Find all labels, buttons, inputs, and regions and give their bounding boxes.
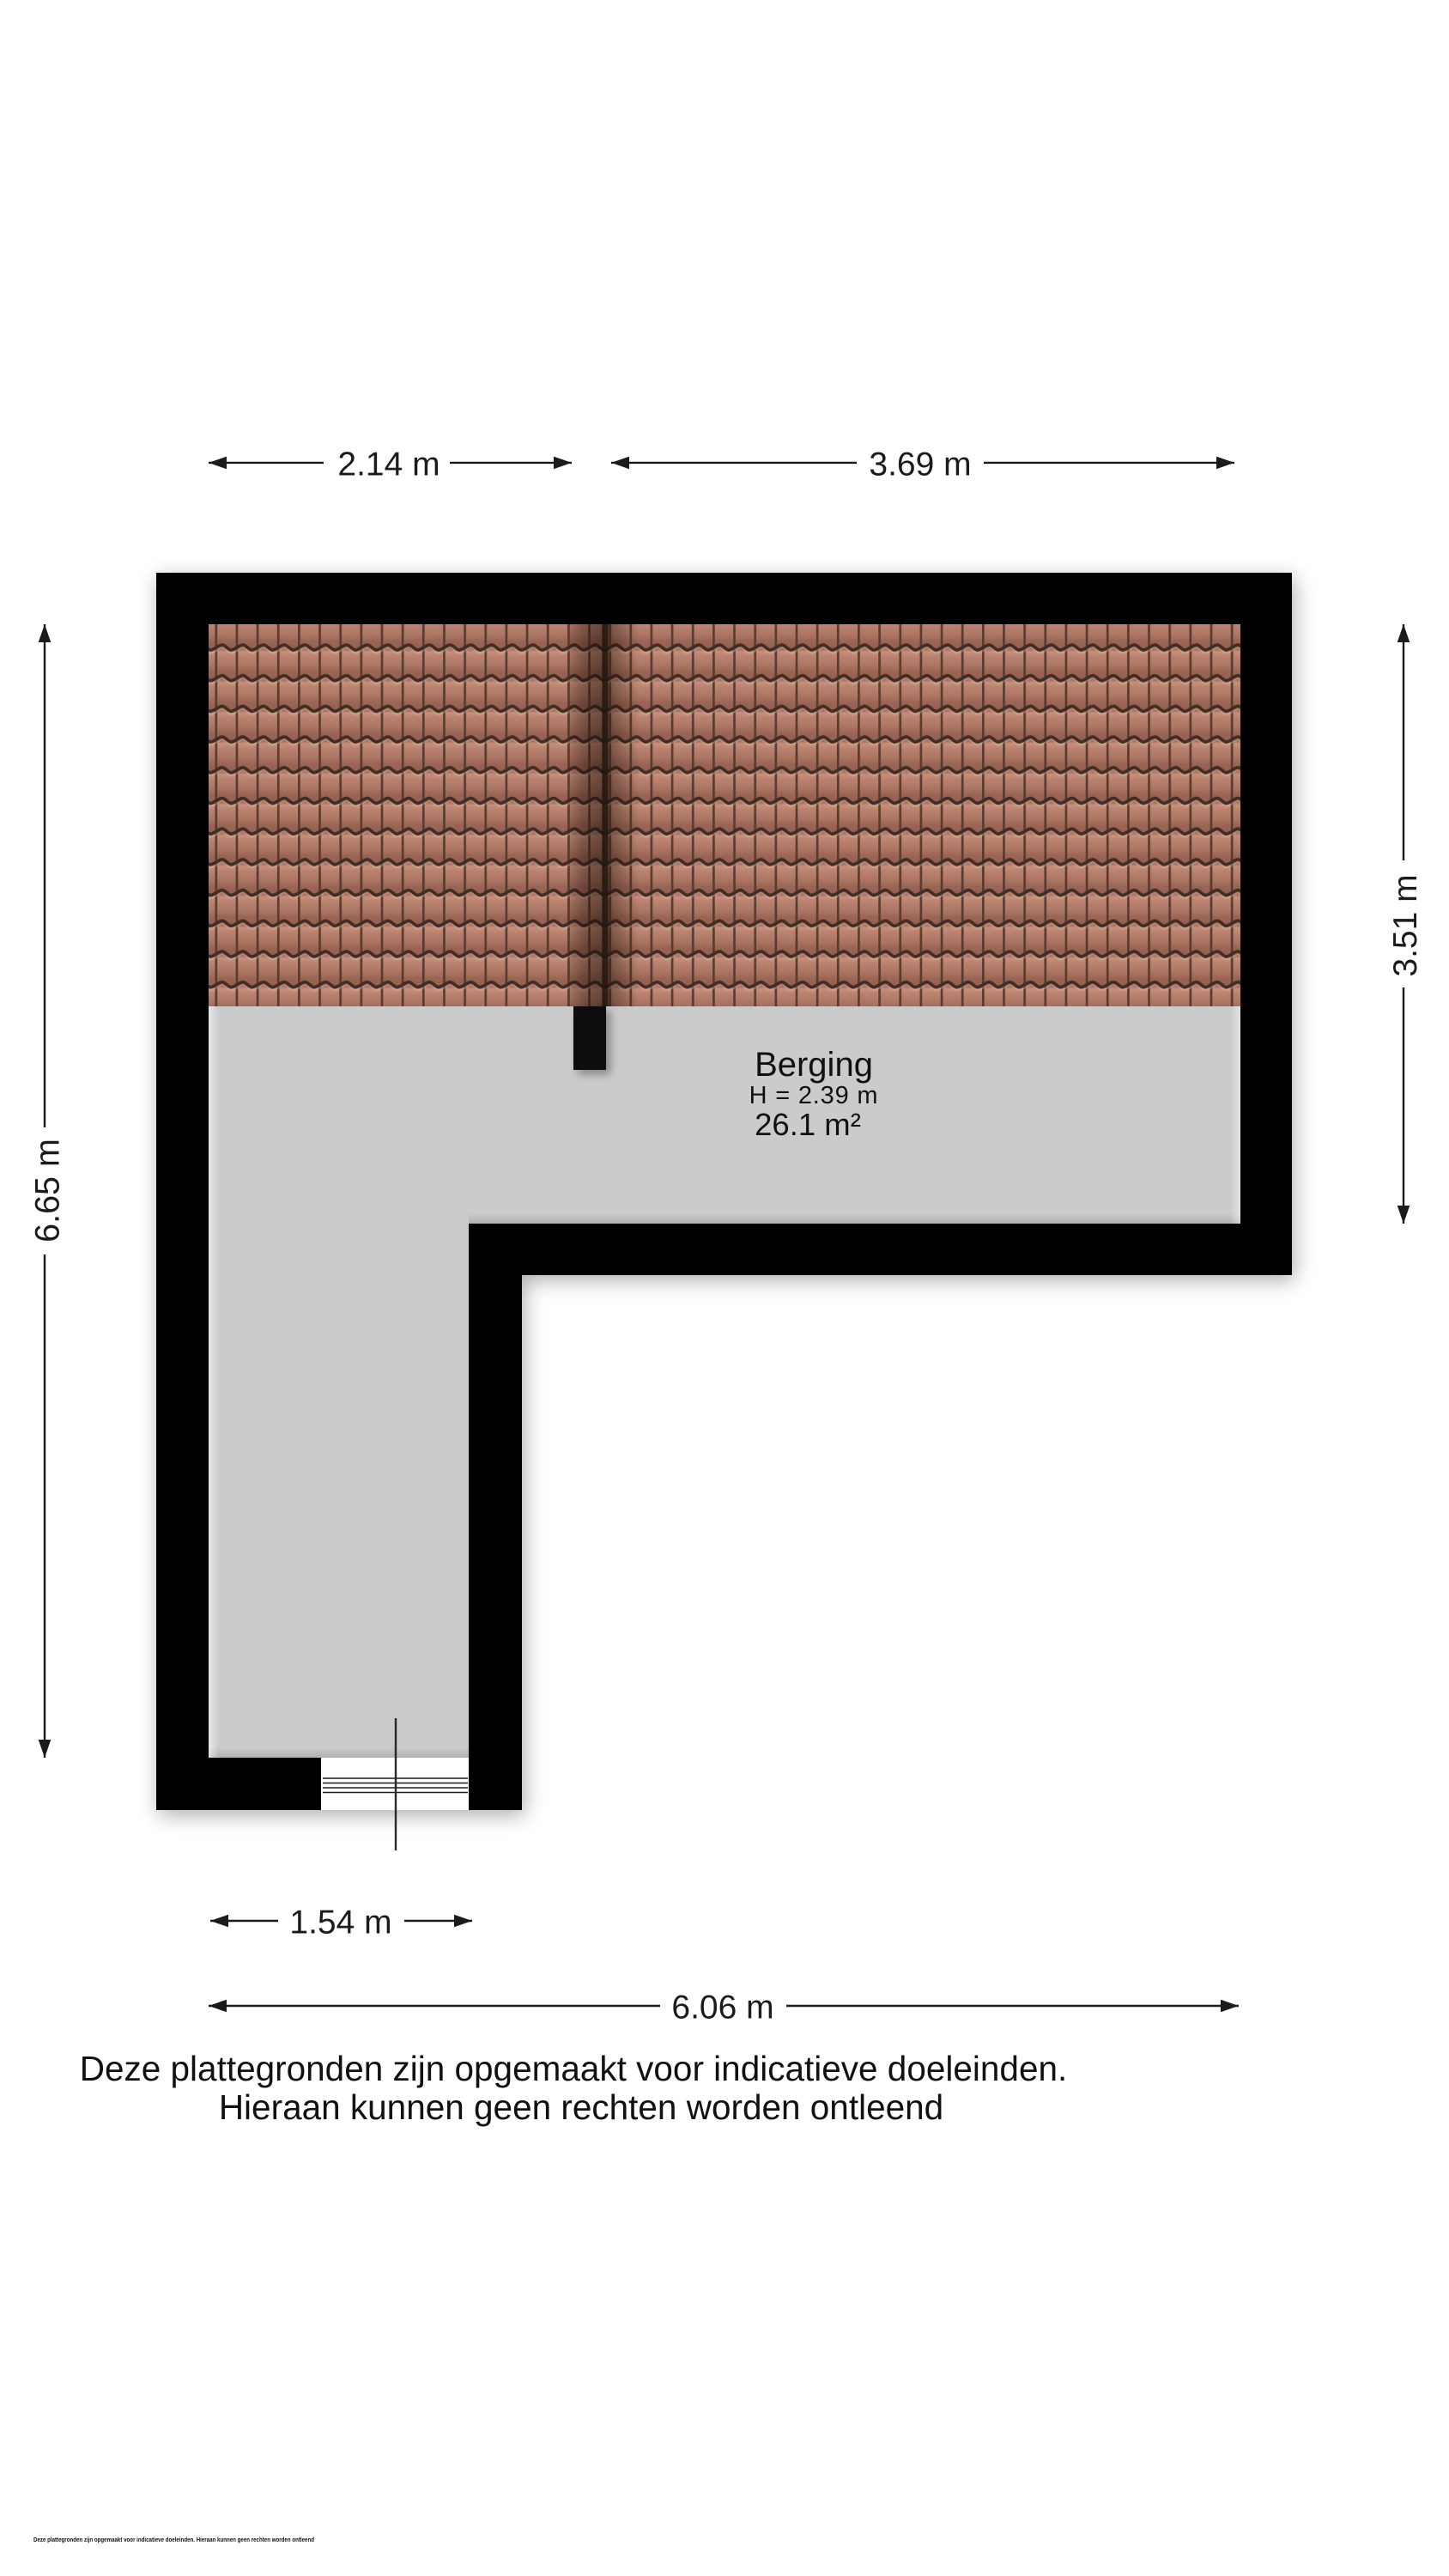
svg-text:Hieraan kunnen geen rechten wo: Hieraan kunnen geen rechten worden ontle… — [219, 2087, 943, 2127]
svg-text:Deze plattegronden zijn opgema: Deze plattegronden zijn opgemaakt voor i… — [33, 2536, 314, 2543]
svg-text:1.54 m: 1.54 m — [289, 1905, 391, 1941]
svg-text:6.06 m: 6.06 m — [671, 1990, 773, 2026]
svg-text:3.51 m: 3.51 m — [1387, 874, 1424, 976]
svg-text:H = 2.39 m: H = 2.39 m — [749, 1082, 879, 1109]
svg-text:Deze plattegronden zijn opgema: Deze plattegronden zijn opgemaakt voor i… — [80, 2049, 1068, 2088]
svg-text:Berging: Berging — [755, 1046, 873, 1084]
svg-text:6.65 m: 6.65 m — [29, 1139, 67, 1242]
svg-text:3.69 m: 3.69 m — [869, 447, 971, 483]
svg-text:2.14 m: 2.14 m — [337, 447, 440, 483]
svg-text:26.1 m²: 26.1 m² — [755, 1107, 861, 1142]
